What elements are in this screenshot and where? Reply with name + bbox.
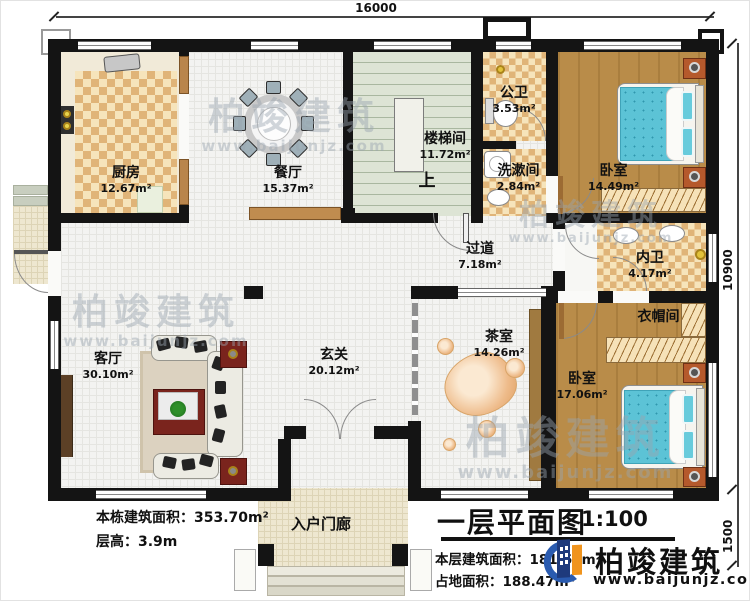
bed-headboard (695, 85, 704, 163)
rock-garden-stone (437, 338, 454, 355)
nightstand (683, 58, 706, 79)
wall-foyer-bottom (284, 426, 306, 439)
wall-connector (278, 439, 291, 501)
wall-tea-top (411, 286, 458, 299)
dimension-tick (727, 38, 738, 49)
porch-step (267, 566, 405, 576)
bed-pillow (682, 430, 695, 460)
dining-chair (266, 81, 281, 94)
dimension-tick (727, 484, 738, 495)
window (50, 321, 59, 369)
room-label-bedroom-top: 卧室 14.49m² (571, 163, 656, 193)
top-dimension-line (56, 16, 714, 18)
door-opening (553, 229, 565, 271)
bed-pillow (681, 127, 694, 157)
dining-chair (233, 116, 246, 131)
dimension-tick (727, 560, 738, 571)
room-label-foyer: 玄关 20.12m² (294, 347, 374, 377)
room-label-washroom: 洗漱间 2.84m² (481, 163, 556, 193)
door-leaf (558, 176, 563, 214)
floor-height-text: 层高：3.9m (96, 531, 177, 551)
kitchen-sliding-door (179, 159, 189, 205)
dining-sideboard (249, 207, 341, 220)
sofa-cushion (162, 456, 177, 469)
porch-step (267, 576, 405, 586)
door-opening (613, 291, 649, 303)
stair-up-label: 上 (415, 171, 439, 191)
cloakroom-wardrobe (606, 337, 706, 363)
bed-pillow (682, 394, 695, 424)
room-label-corridor: 过道 7.18m² (441, 241, 519, 271)
window (251, 41, 298, 50)
scale-text: 1:100 (581, 507, 648, 531)
porch-column (392, 544, 408, 566)
porch-side-pad (234, 549, 256, 591)
window (441, 490, 528, 499)
shower-head-icon (695, 249, 706, 260)
window (78, 41, 151, 50)
dining-chair (301, 116, 314, 131)
tv-cabinet (61, 375, 73, 457)
kitchen-door-opening (179, 94, 189, 159)
sink-icon (613, 227, 639, 244)
rock-garden-stone (478, 420, 496, 438)
room-label-entry-porch: 入户门廊 (271, 515, 371, 533)
building-area-text: 本栋建筑面积：353.70m² (96, 507, 269, 527)
right-dimension-label-porch: 1500 (721, 503, 735, 553)
window (589, 490, 673, 499)
sofa-cushion (193, 340, 208, 353)
side-porch-step (13, 196, 48, 206)
right-dimension-line (737, 43, 739, 567)
wall-stub (341, 208, 355, 223)
right-dimension-label-main: 10900 (721, 229, 735, 291)
wall-bedroom-top-bottom (546, 213, 719, 223)
door-leaf (559, 303, 564, 339)
porch-side-pad (410, 549, 432, 591)
wall-connector (408, 421, 421, 501)
porch-step (267, 586, 405, 596)
nightstand (683, 467, 706, 487)
door-arc (14, 253, 48, 293)
room-label-tea-room: 茶室 14.26m² (459, 329, 539, 359)
bed-headboard (696, 388, 705, 466)
side-table-decor (228, 466, 238, 476)
window (496, 41, 531, 50)
chimney-flue (483, 17, 531, 41)
sink-icon (659, 225, 685, 242)
window (374, 41, 451, 50)
sofa-cushion (215, 381, 226, 394)
floor-plan-canvas: 16000 10900 1500 (0, 0, 750, 601)
room-label-public-bath: 公卫 3.53m² (485, 85, 543, 115)
window (96, 490, 206, 499)
sofa-cushion (174, 336, 188, 349)
rock-garden-stone (443, 438, 456, 451)
plant-icon (170, 401, 186, 417)
nightstand (683, 167, 706, 188)
door-opening (48, 251, 61, 296)
room-label-kitchen: 厨房 12.67m² (86, 165, 166, 195)
bed-pillow (681, 91, 694, 121)
dining-table-top (257, 107, 291, 141)
brand-website: www.baijunjz.com (593, 572, 750, 588)
room-label-living-room: 客厅 30.10m² (68, 351, 148, 381)
nightstand (683, 363, 706, 383)
top-dimension-label: 16000 (331, 1, 421, 15)
porch-column (258, 544, 274, 566)
kitchen-sliding-door (179, 56, 189, 94)
room-label-cloakroom: 衣帽间 (616, 309, 701, 326)
interior-window (458, 288, 546, 297)
side-porch-step (13, 185, 48, 195)
window (708, 234, 717, 282)
rock-garden-stone (505, 358, 525, 378)
tea-screen-partition (412, 303, 418, 415)
door-opening (558, 291, 598, 303)
room-label-bedroom-bottom: 卧室 17.06m² (541, 371, 623, 401)
burner-icon (63, 110, 71, 118)
window (584, 41, 681, 50)
burner-icon (63, 122, 71, 130)
window (708, 363, 717, 477)
room-label-stairwell: 楼梯间 11.72m² (399, 131, 491, 161)
wall-kitchen-bottom (48, 213, 189, 223)
structural-column (244, 286, 263, 299)
wall-stair-left (343, 52, 353, 223)
sofa-cushion (181, 458, 195, 471)
wall-lamp-icon (496, 65, 505, 74)
door-leaf (14, 250, 48, 254)
sofa-cushion (214, 404, 227, 419)
wall-stair-bottom (343, 213, 438, 223)
door-leaf (463, 213, 469, 243)
room-label-dining: 餐厅 15.37m² (248, 165, 328, 195)
room-label-inner-bath: 内卫 4.17m² (619, 250, 681, 280)
wall-bedroom-top-left (546, 52, 558, 176)
brand-logo-icon (537, 535, 591, 591)
side-table-decor (228, 349, 238, 359)
